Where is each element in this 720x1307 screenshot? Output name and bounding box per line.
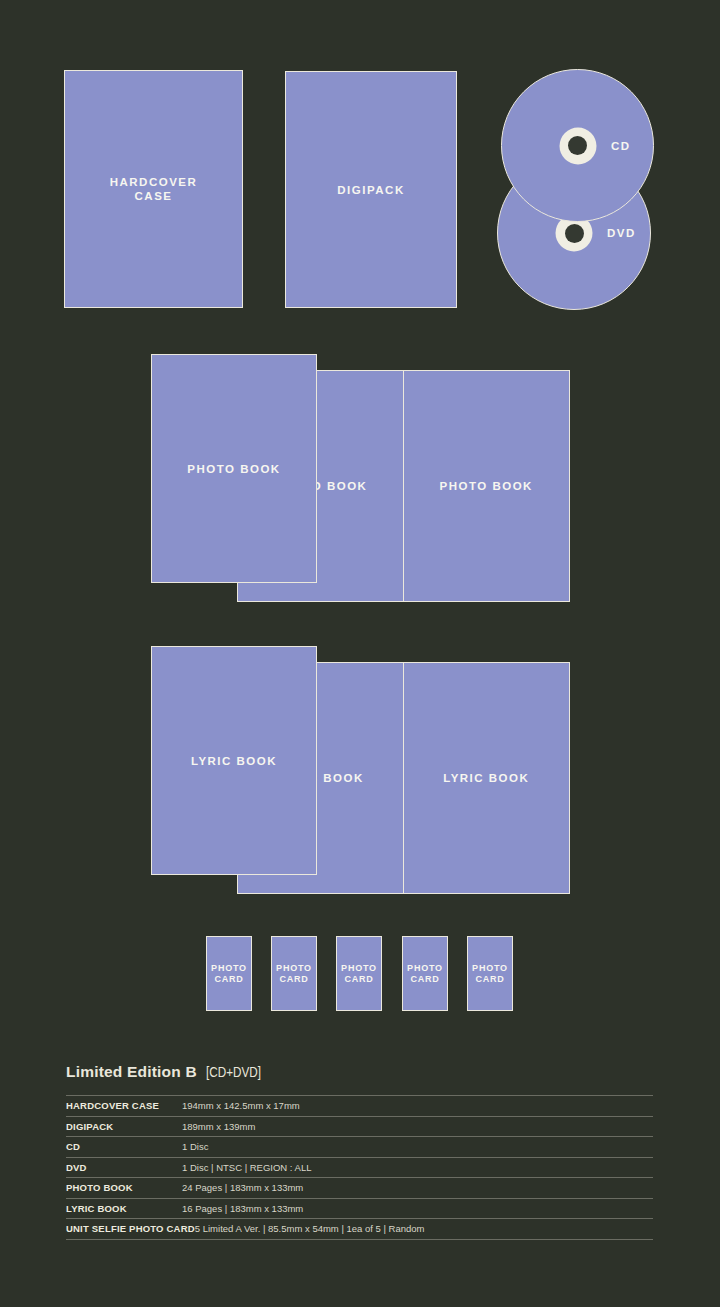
spec-label: DVD — [66, 1162, 182, 1173]
edition-title: Limited Edition B — [66, 1063, 197, 1081]
edition-subtitle: [CD+DVD] — [206, 1063, 261, 1080]
photo-card-label: PHOTO CARD — [407, 963, 443, 985]
photo-card-label-line1: PHOTO — [276, 963, 312, 974]
photo-book-spread-right-label: PHOTO BOOK — [440, 479, 533, 493]
cd-label: CD — [611, 139, 631, 153]
cd-disc-mockup: CD — [501, 69, 654, 222]
photo-card-label-line1: PHOTO — [341, 963, 377, 974]
photo-card-label-line2: CARD — [410, 974, 439, 985]
photo-book-cover-label: PHOTO BOOK — [187, 462, 280, 476]
spec-table: HARDCOVER CASE 194mm x 142.5mm x 17mm DI… — [66, 1095, 653, 1240]
dvd-center-hole — [565, 224, 584, 243]
photo-card-label-line2: CARD — [475, 974, 504, 985]
spec-value: 1 Disc — [182, 1141, 208, 1152]
spec-row-lyric-book: LYRIC BOOK 16 Pages | 183mm x 133mm — [66, 1198, 653, 1219]
lyric-book-spine-divider — [403, 663, 405, 893]
photo-card-label-line1: PHOTO — [407, 963, 443, 974]
spec-label: HARDCOVER CASE — [66, 1100, 182, 1111]
spec-value: 24 Pages | 183mm x 133mm — [182, 1182, 303, 1193]
spec-row-photo-book: PHOTO BOOK 24 Pages | 183mm x 133mm — [66, 1177, 653, 1198]
photo-card-label: PHOTO CARD — [211, 963, 247, 985]
photo-card-label: PHOTO CARD — [341, 963, 377, 985]
lyric-book-spread-right-label: LYRIC BOOK — [443, 771, 529, 785]
photo-card-label-line2: CARD — [279, 974, 308, 985]
photo-card-label-line2: CARD — [344, 974, 373, 985]
spec-row-hardcover-case: HARDCOVER CASE 194mm x 142.5mm x 17mm — [66, 1095, 653, 1116]
photo-book-cover: PHOTO BOOK — [151, 354, 317, 583]
photo-card-label-line1: PHOTO — [211, 963, 247, 974]
photo-card-mockup-3: PHOTO CARD — [336, 936, 382, 1011]
hardcover-case-mockup: HARDCOVER CASE — [64, 70, 243, 308]
photo-card-label: PHOTO CARD — [276, 963, 312, 985]
spec-label: DIGIPACK — [66, 1121, 182, 1132]
album-package-spec-sheet: HARDCOVER CASE DIGIPACK DVD CD PHOTO BOO… — [0, 0, 720, 1307]
spec-value: 189mm x 139mm — [182, 1121, 255, 1132]
lyric-book-spread-right-page: LYRIC BOOK — [404, 663, 570, 893]
spec-label: LYRIC BOOK — [66, 1203, 182, 1214]
photo-card-label-line2: CARD — [214, 974, 243, 985]
digipack-label: DIGIPACK — [337, 183, 404, 197]
hardcover-case-label-line2: CASE — [135, 189, 173, 203]
photo-card-label: PHOTO CARD — [472, 963, 508, 985]
spec-value: 1 Disc | NTSC | REGION : ALL — [182, 1162, 312, 1173]
edition-title-row: Limited Edition B [CD+DVD] — [66, 1063, 276, 1081]
spec-label: CD — [66, 1141, 182, 1152]
spec-value: 194mm x 142.5mm x 17mm — [182, 1100, 300, 1111]
spec-label: UNIT SELFIE PHOTO CARD — [66, 1223, 195, 1234]
photo-card-mockup-4: PHOTO CARD — [402, 936, 448, 1011]
photo-card-label-line1: PHOTO — [472, 963, 508, 974]
photo-book-spread-right-page: PHOTO BOOK — [404, 371, 570, 601]
spec-label: PHOTO BOOK — [66, 1182, 182, 1193]
spec-row-cd: CD 1 Disc — [66, 1136, 653, 1157]
spec-row-unit-selfie-photo-card: UNIT SELFIE PHOTO CARD 5 Limited A Ver. … — [66, 1218, 653, 1240]
digipack-mockup: DIGIPACK — [285, 71, 457, 308]
cd-center-hole — [568, 136, 587, 155]
lyric-book-cover: LYRIC BOOK — [151, 646, 317, 875]
spec-row-digipack: DIGIPACK 189mm x 139mm — [66, 1116, 653, 1137]
photo-card-mockup-5: PHOTO CARD — [467, 936, 513, 1011]
dvd-label: DVD — [607, 226, 636, 240]
hardcover-case-label: HARDCOVER CASE — [110, 175, 198, 203]
spec-value: 5 Limited A Ver. | 85.5mm x 54mm | 1ea o… — [195, 1223, 425, 1234]
lyric-book-cover-label: LYRIC BOOK — [191, 754, 277, 768]
photo-card-mockup-2: PHOTO CARD — [271, 936, 317, 1011]
photo-card-mockup-1: PHOTO CARD — [206, 936, 252, 1011]
cd-hub-ring — [559, 127, 596, 164]
hardcover-case-label-line1: HARDCOVER — [110, 175, 198, 189]
spec-row-dvd: DVD 1 Disc | NTSC | REGION : ALL — [66, 1157, 653, 1178]
spec-value: 16 Pages | 183mm x 133mm — [182, 1203, 303, 1214]
photo-book-spine-divider — [403, 371, 405, 601]
